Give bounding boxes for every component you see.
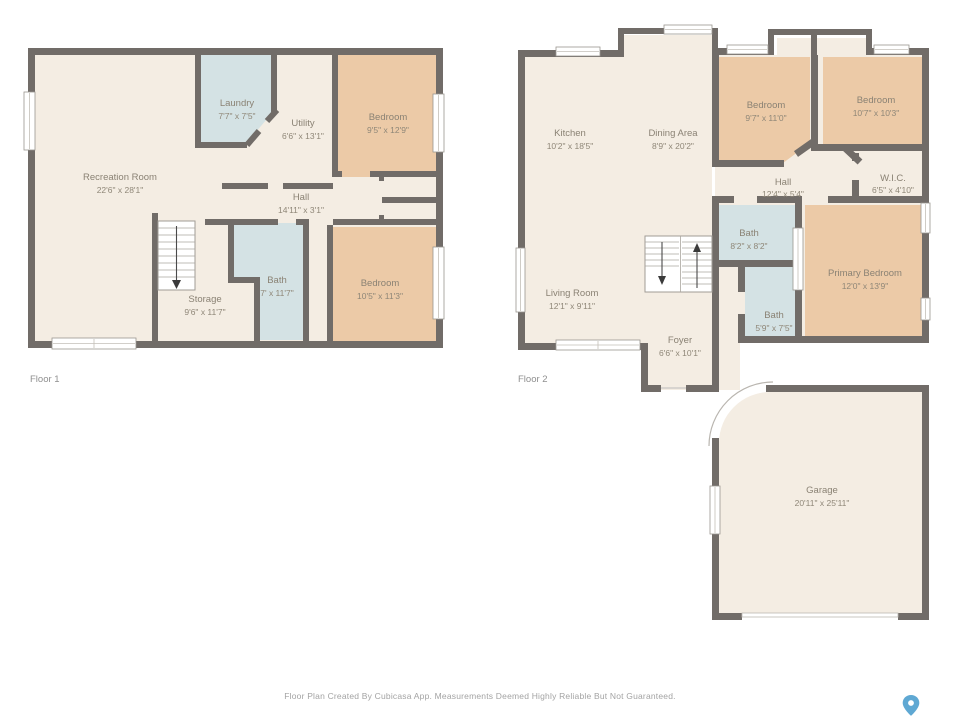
room-dims-bedroom-f2a: 9'7" x 11'0" bbox=[745, 113, 786, 123]
room-label-bedroom-f1a: Bedroom bbox=[369, 112, 408, 123]
footer-disclaimer: Floor Plan Created By Cubicasa App. Meas… bbox=[284, 691, 675, 701]
room-dims-primary-bedroom: 12'0" x 13'9" bbox=[842, 281, 889, 291]
room-dims-bedroom-f1b: 10'5" x 11'3" bbox=[357, 291, 403, 301]
room-dims-garage: 20'11" x 25'11" bbox=[795, 498, 850, 508]
room-label-kitchen: Kitchen bbox=[554, 128, 586, 139]
room-dims-hall-f2: 12'4" x 5'4" bbox=[762, 189, 804, 199]
room-label-bath-f2a: Bath bbox=[739, 228, 759, 239]
floor-plan-canvas: Recreation Room 22'6" x 28'1" Laundry 7'… bbox=[0, 0, 960, 720]
floor1-plan: Recreation Room 22'6" x 28'1" Laundry 7'… bbox=[24, 48, 444, 385]
room-dims-recreation: 22'6" x 28'1" bbox=[97, 185, 144, 195]
room-label-dining: Dining Area bbox=[648, 128, 698, 139]
room-label-laundry: Laundry bbox=[220, 98, 255, 109]
room-dims-kitchen: 10'2" x 18'5" bbox=[547, 141, 594, 151]
map-pin-icon bbox=[903, 695, 920, 716]
room-label-bedroom-f1b: Bedroom bbox=[361, 278, 400, 289]
room-dims-dining: 8'9" x 20'2" bbox=[652, 141, 694, 151]
room-dims-utility: 6'6" x 13'1" bbox=[282, 131, 324, 141]
room-dims-foyer: 6'6" x 10'1" bbox=[659, 348, 701, 358]
room-dims-laundry: 7'7" x 7'5" bbox=[218, 111, 255, 121]
room-label-bath-f2b: Bath bbox=[764, 310, 784, 321]
room-label-storage: Storage bbox=[188, 294, 221, 305]
room-dims-bedroom-f1a: 9'5" x 12'9" bbox=[367, 125, 409, 135]
room-dims-bath-f2a: 8'2" x 8'2" bbox=[730, 241, 767, 251]
room-label-bedroom-f2b: Bedroom bbox=[857, 95, 896, 106]
room-dims-storage: 9'6" x 11'7" bbox=[184, 307, 225, 317]
floor2-stairs bbox=[645, 236, 712, 292]
room-dims-bath-f1: 7' x 11'7" bbox=[260, 288, 294, 298]
room-dims-bedroom-f2b: 10'7" x 10'3" bbox=[853, 108, 900, 118]
room-label-wic: W.I.C. bbox=[880, 173, 906, 184]
room-label-hall-f2: Hall bbox=[775, 177, 791, 188]
room-label-foyer: Foyer bbox=[668, 335, 692, 346]
room-dims-bath-f2b: 5'9" x 7'5" bbox=[755, 323, 792, 333]
room-label-primary-bedroom: Primary Bedroom bbox=[828, 268, 902, 279]
room-label-living: Living Room bbox=[546, 288, 599, 299]
floor2-caption: Floor 2 bbox=[518, 374, 548, 385]
room-dims-wic: 6'5" x 4'10" bbox=[872, 185, 914, 195]
room-dims-hall-f1: 14'11" x 3'1" bbox=[278, 205, 324, 215]
room-dims-living: 12'1" x 9'11" bbox=[549, 301, 595, 311]
room-label-bedroom-f2a: Bedroom bbox=[747, 100, 786, 111]
room-label-hall-f1: Hall bbox=[293, 192, 309, 203]
room-label-utility: Utility bbox=[291, 118, 314, 129]
room-label-garage: Garage bbox=[806, 485, 838, 496]
floor1-stairs bbox=[158, 221, 195, 290]
room-label-recreation: Recreation Room bbox=[83, 172, 157, 183]
floor1-caption: Floor 1 bbox=[30, 374, 60, 385]
floor-plan-page: Recreation Room 22'6" x 28'1" Laundry 7'… bbox=[0, 0, 960, 720]
floor2-plan: Kitchen 10'2" x 18'5" Dining Area 8'9" x… bbox=[516, 25, 930, 620]
room-label-bath-f1: Bath bbox=[267, 275, 287, 286]
